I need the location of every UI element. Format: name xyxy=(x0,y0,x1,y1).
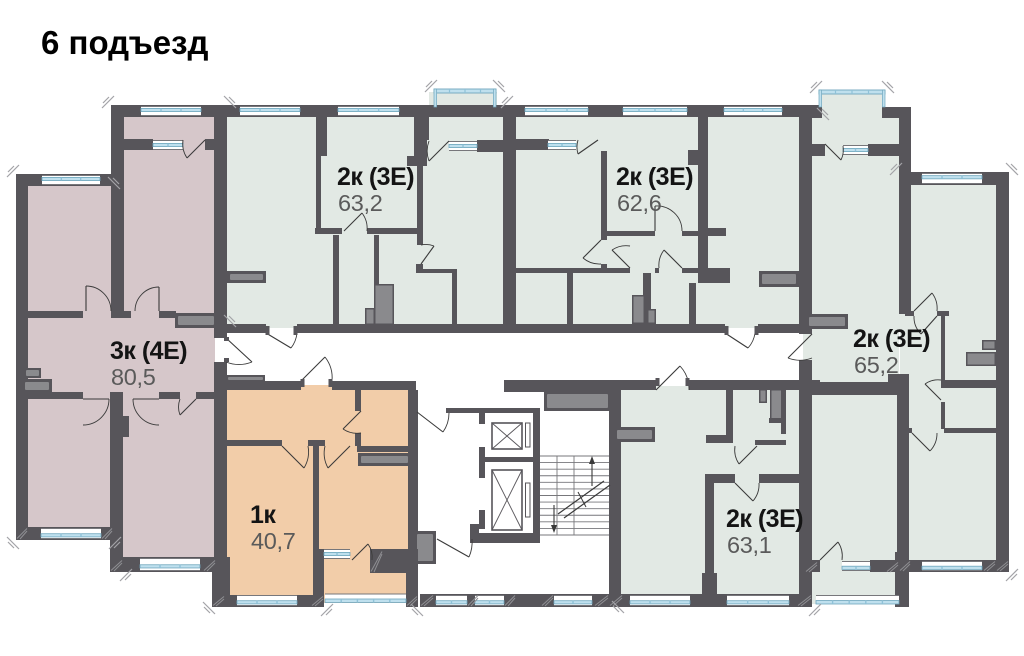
svg-text:63,1: 63,1 xyxy=(727,532,772,558)
svg-text:1к: 1к xyxy=(250,501,276,529)
svg-text:2к (3Е): 2к (3Е) xyxy=(616,163,693,191)
svg-text:62,6: 62,6 xyxy=(617,190,662,216)
svg-text:65,2: 65,2 xyxy=(854,352,899,378)
svg-text:80,5: 80,5 xyxy=(111,364,156,390)
svg-text:2к (3Е): 2к (3Е) xyxy=(853,325,930,353)
svg-text:2к (3Е): 2к (3Е) xyxy=(726,505,803,533)
svg-text:63,2: 63,2 xyxy=(338,190,383,216)
svg-text:40,7: 40,7 xyxy=(251,528,296,554)
svg-text:3к (4Е): 3к (4Е) xyxy=(110,337,187,365)
svg-text:2к (3Е): 2к (3Е) xyxy=(337,163,414,191)
